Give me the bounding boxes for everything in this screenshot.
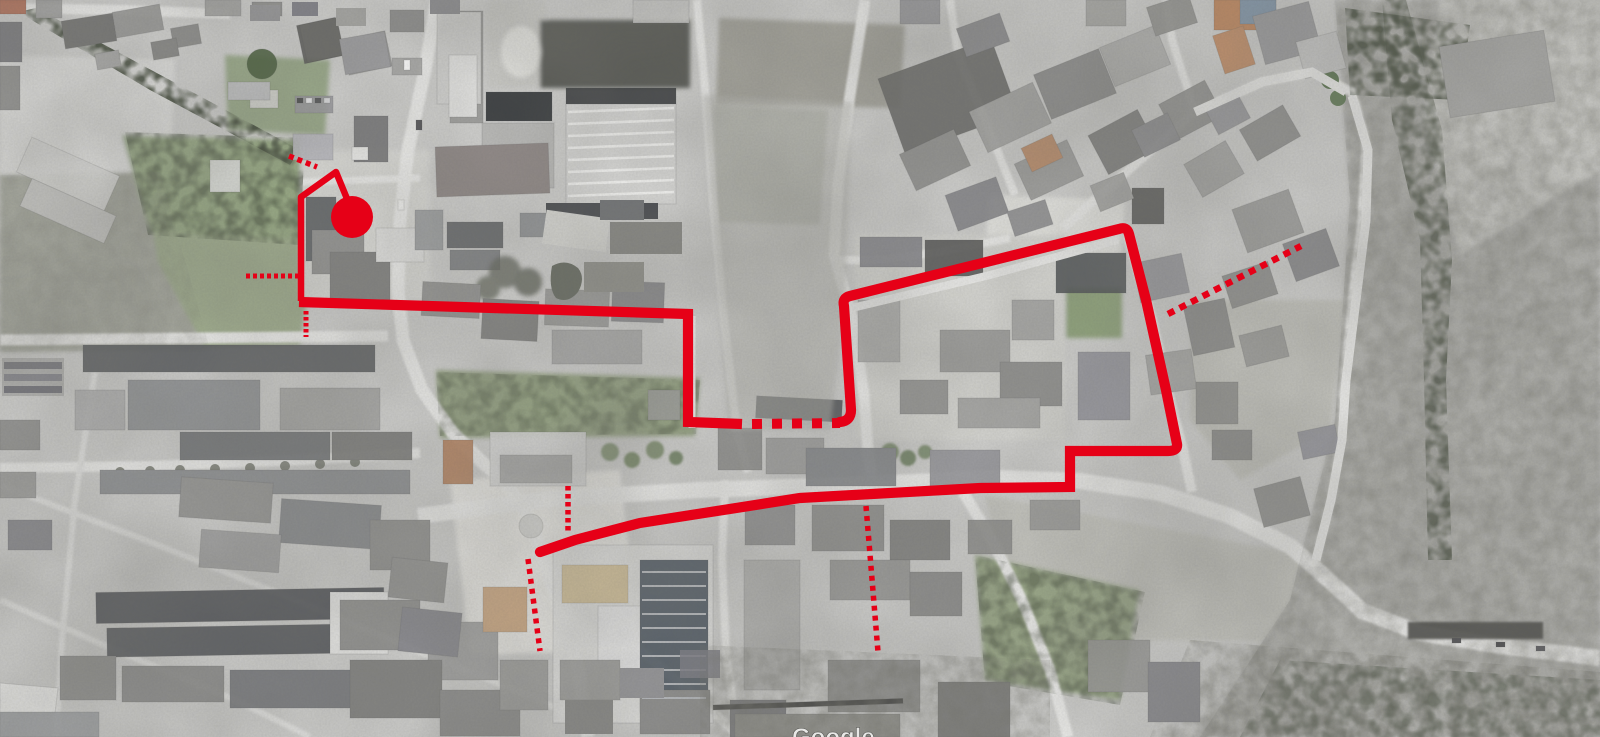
svg-text:Google: Google (792, 724, 875, 737)
